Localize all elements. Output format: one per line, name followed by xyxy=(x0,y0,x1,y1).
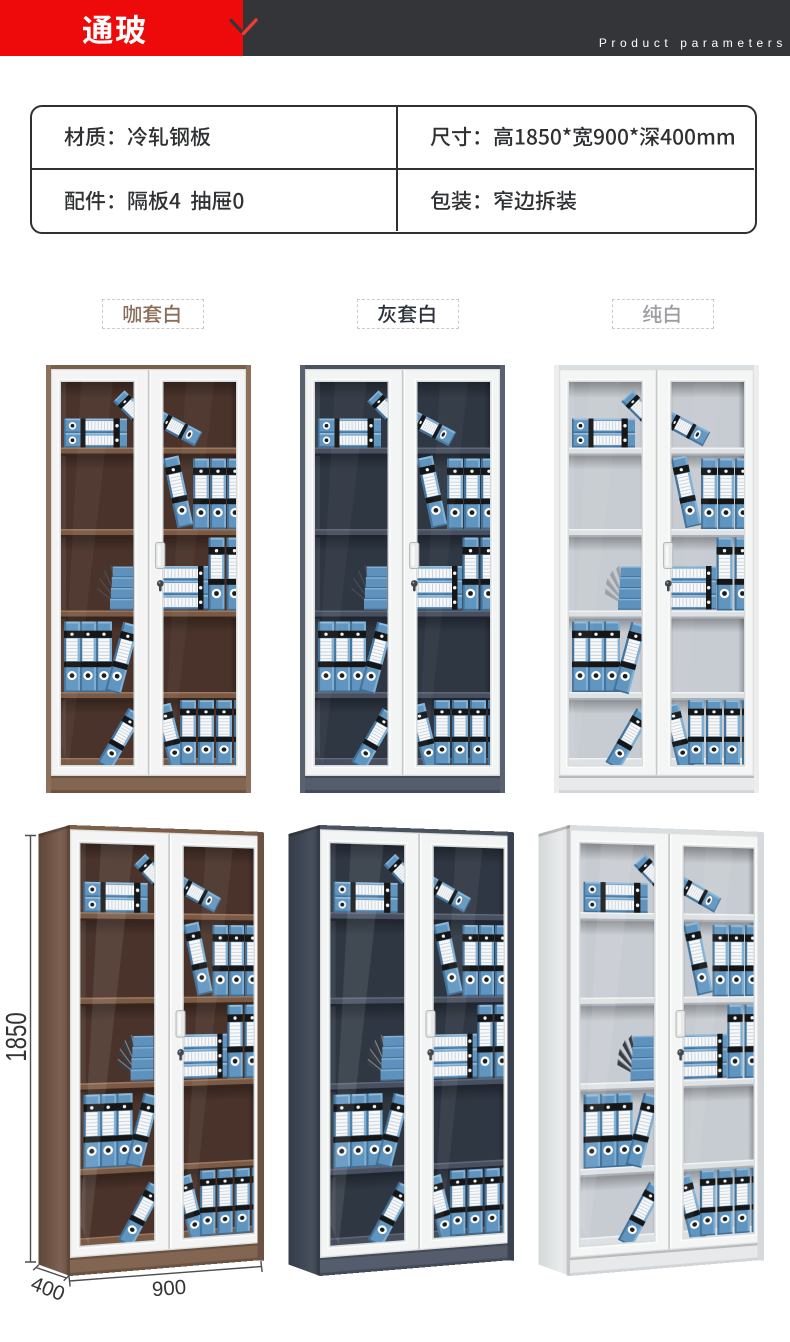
svg-text:1850: 1850 xyxy=(1,1012,32,1061)
svg-text:900: 900 xyxy=(151,1276,187,1302)
svg-text:400: 400 xyxy=(28,1272,68,1306)
